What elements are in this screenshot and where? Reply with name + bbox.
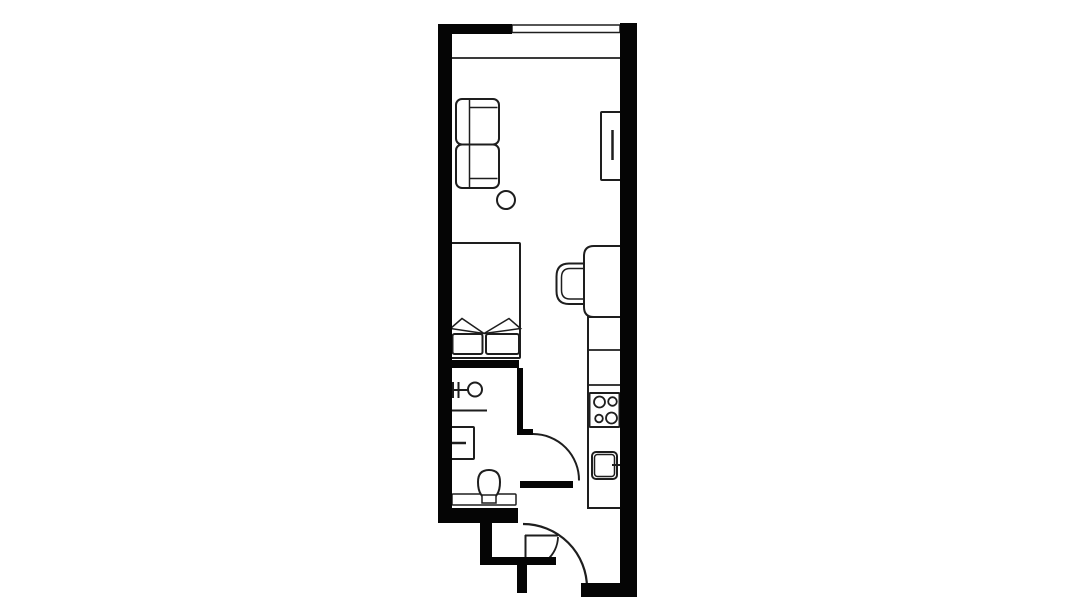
stove-burner-bottom-left [595,415,603,423]
entry-step-wall-horizontal [480,557,556,565]
top-wall [438,24,512,34]
bedroom-bathroom-divider-wall [438,360,519,368]
sofa-seat-top [456,99,499,145]
kitchen-sink-inner [595,455,615,477]
bathroom-right-wall [517,368,523,430]
left-wall [438,24,452,523]
bottom-right-wall [581,583,637,597]
entry-closet-door-arc [547,537,558,560]
tv-unit [601,112,621,180]
bathroom-door-arc [533,434,579,481]
bed-cushion-left [453,334,483,354]
bathroom-door-jamb [517,429,533,435]
stove-burner-top-right [608,397,617,406]
floor-plan-canvas [0,0,1092,614]
desk-chair-back-inner [562,269,585,300]
sofa-seat-bottom [456,145,499,189]
entry-step-wall-vertical-2 [517,565,527,593]
desk [584,246,621,317]
bed-cushion-right [486,334,519,354]
stove-burner-top-left [594,397,605,408]
side-table [497,191,515,209]
entry-door-arc [523,524,587,588]
right-wall [620,23,637,597]
shower-head [468,383,482,397]
stove-burner-bottom-right [606,413,617,424]
desk-chair-back-outer [557,264,585,305]
toilet-seat-hinge [482,495,496,503]
floor-plan-page [0,0,1092,614]
bathroom-bottom-wall [438,508,518,523]
window [512,25,620,33]
bathroom-door-leaf [520,481,573,488]
